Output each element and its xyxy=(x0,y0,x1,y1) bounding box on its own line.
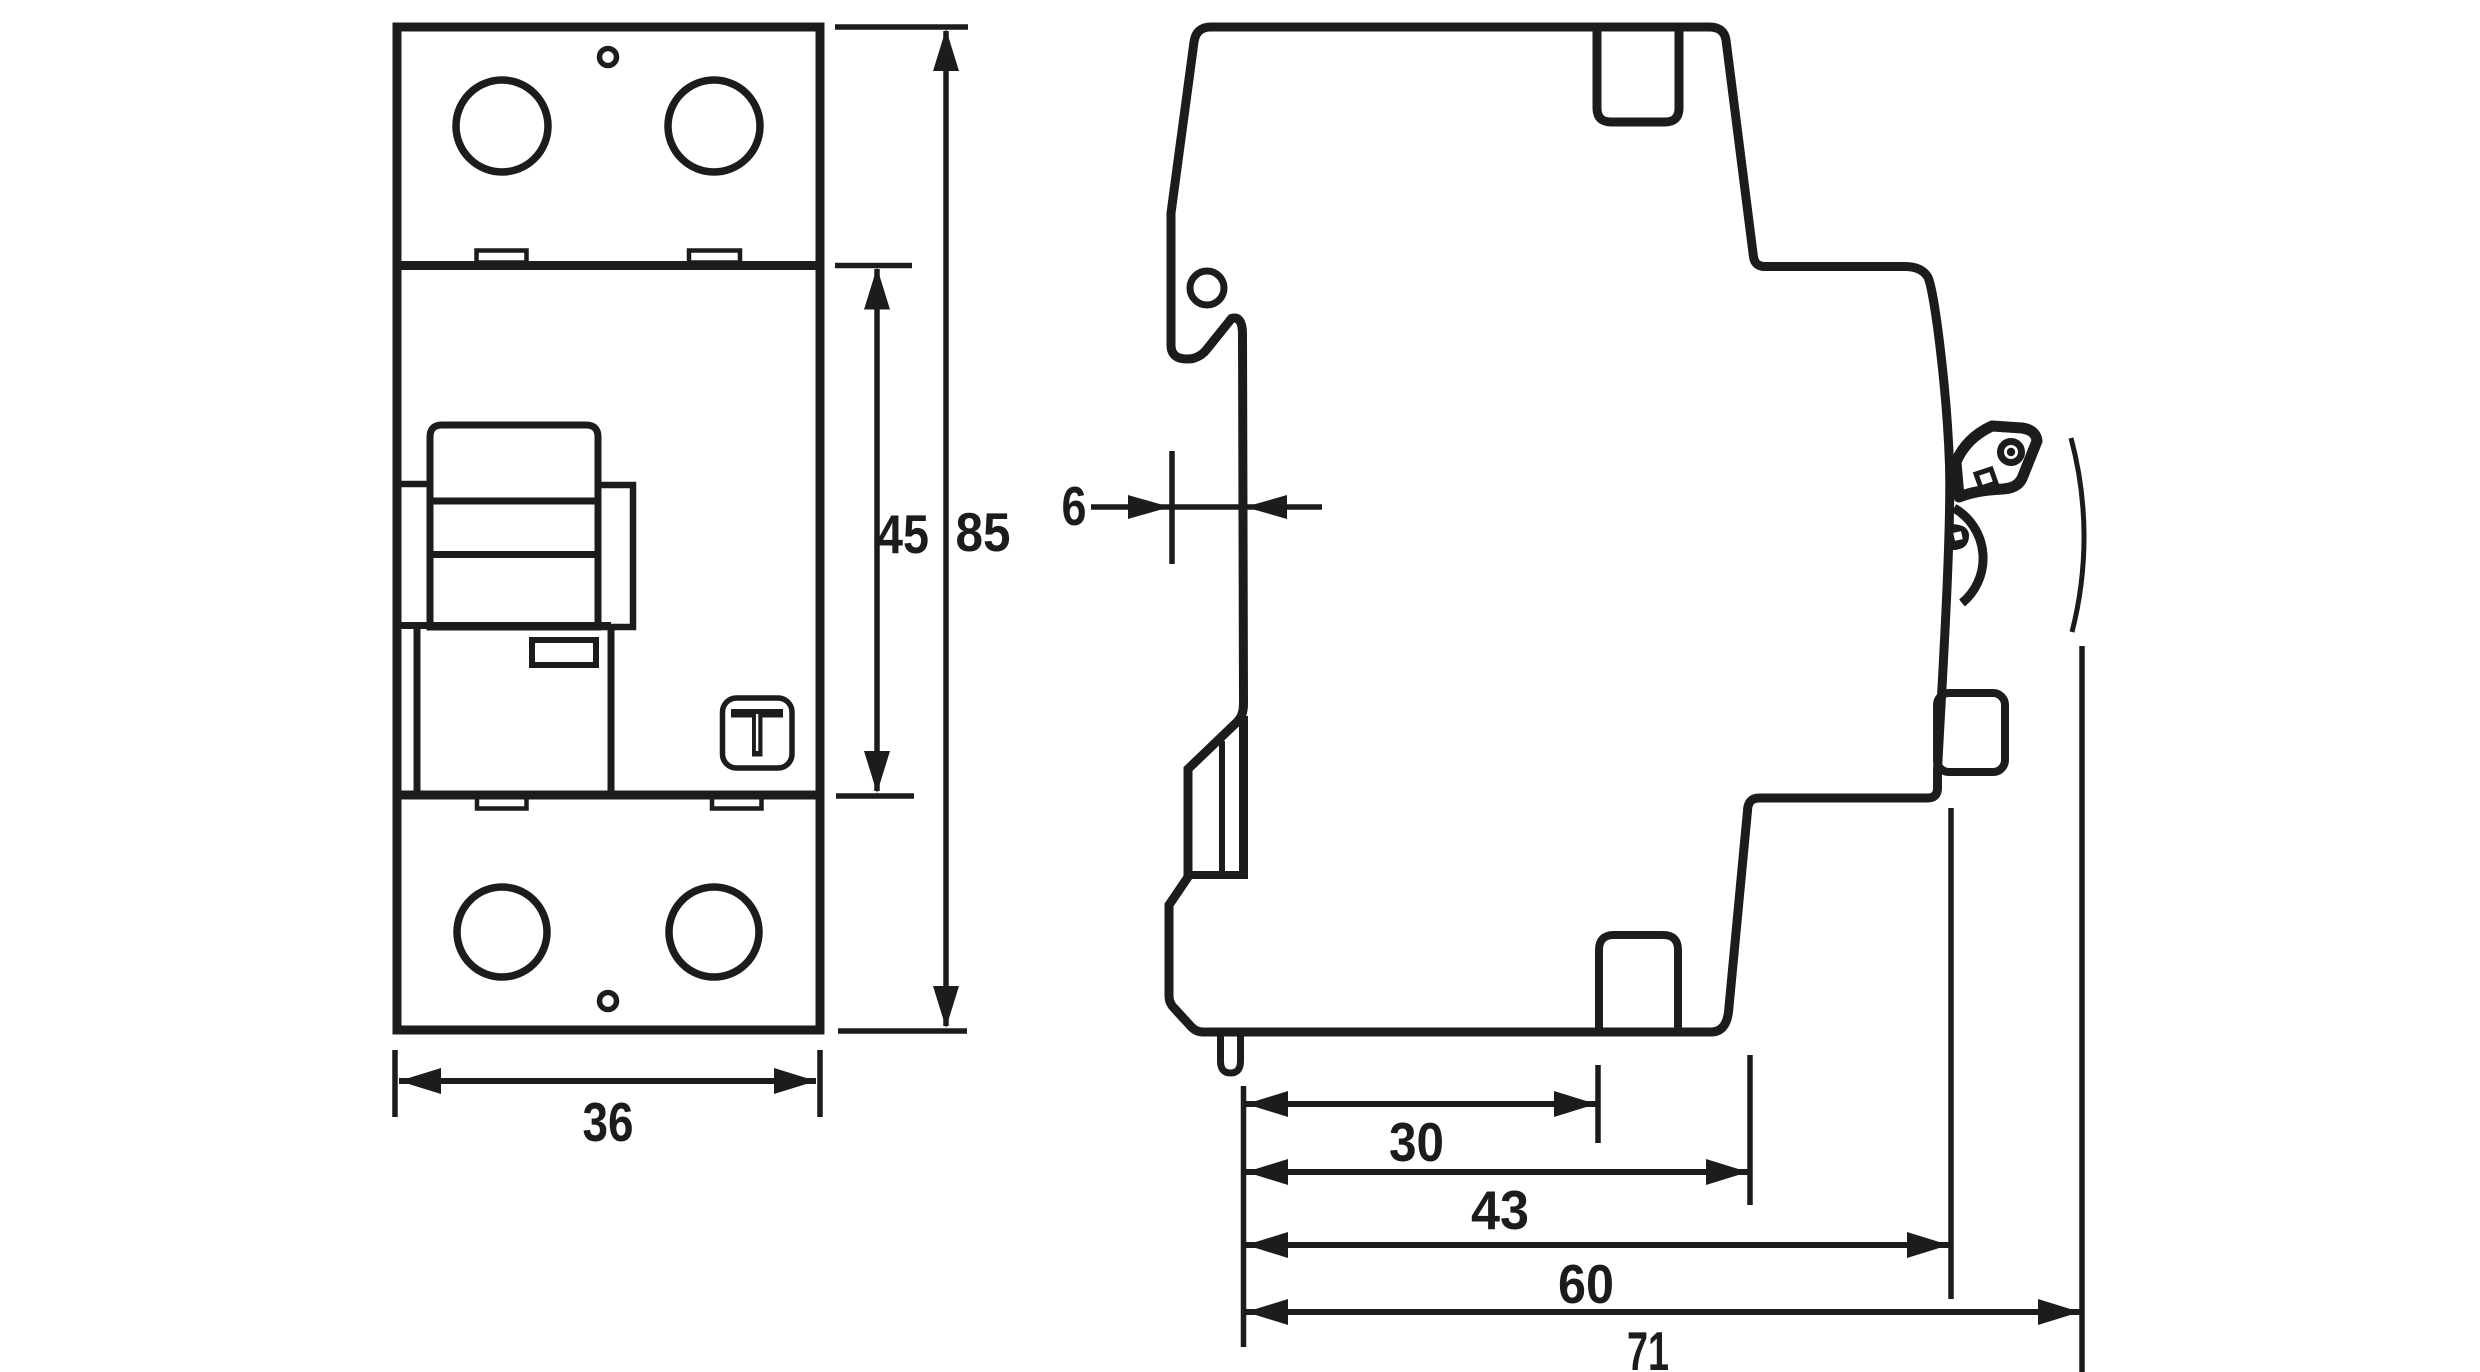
svg-text:45: 45 xyxy=(877,503,929,565)
svg-text:60: 60 xyxy=(1558,1253,1614,1315)
svg-text:85: 85 xyxy=(956,501,1011,563)
svg-text:36: 36 xyxy=(583,1091,634,1153)
svg-text:71: 71 xyxy=(1627,1320,1669,1372)
svg-text:30: 30 xyxy=(1389,1111,1444,1173)
svg-text:43: 43 xyxy=(1471,1179,1529,1241)
svg-text:6: 6 xyxy=(1062,475,1087,537)
